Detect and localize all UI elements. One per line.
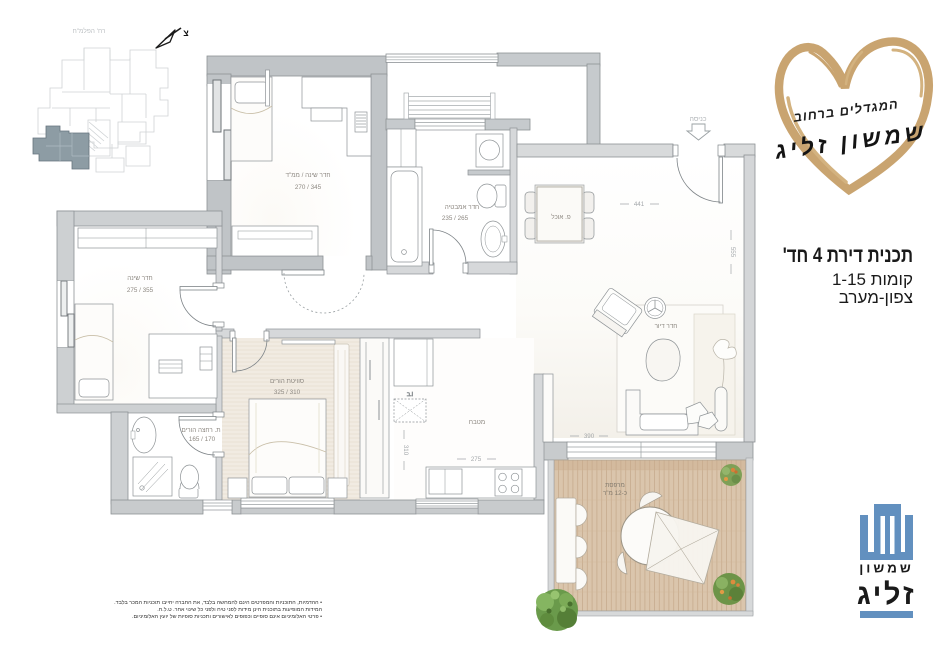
svg-text:441: 441 [634,201,645,208]
svg-text:חדר שינה: חדר שינה [127,275,152,282]
svg-text:270 / 345: 270 / 345 [295,184,322,191]
svg-text:קומות 1-15: קומות 1-15 [832,270,913,289]
svg-text:ב.I: ב.I [407,392,414,398]
svg-text:סוויטת הורים: סוויטת הורים [270,378,304,385]
svg-text:חדר דיור: חדר דיור [655,323,678,330]
svg-text:חדר אמבטיה: חדר אמבטיה [445,204,479,211]
svg-text:390: 390 [584,433,595,440]
svg-text:'תכנית דירת 4 חד: 'תכנית דירת 4 חד [783,244,913,267]
svg-text:רח' הפלמ"ח: רח' הפלמ"ח [72,27,105,35]
svg-text:שמשון: שמשון [859,561,914,576]
svg-text:זליג: זליג [857,579,916,611]
svg-text:275: 275 [471,456,482,463]
svg-text:צ: צ [183,28,189,38]
svg-text:כ-12 מ"ר: כ-12 מ"ר [603,490,627,497]
svg-text:ת. רחצה הורים: ת. רחצה הורים [181,427,220,434]
svg-text:פ. אוכל: פ. אוכל [551,213,571,221]
svg-text:310: 310 [402,445,409,456]
svg-text:235 / 265: 235 / 265 [442,215,469,222]
svg-text:275 / 355: 275 / 355 [127,287,154,294]
svg-text:325 / 310: 325 / 310 [274,389,301,396]
svg-text:חדר שינה / ממ"ד: חדר שינה / ממ"ד [285,172,330,179]
svg-text:צפון-מערב: צפון-מערב [839,288,913,307]
svg-text:מטבח: מטבח [469,419,485,426]
svg-text:מרפסת: מרפסת [605,482,625,489]
svg-text:.פרטי האלומיניום אינם סופיים ו: .פרטי האלומיניום אינם סופיים וכפופים לאי… [132,613,322,620]
svg-text:.המידות המופיעות בתוכנית הינן: .המידות המופיעות בתוכנית הינן מידות לפני… [157,606,322,613]
svg-text:.ההדמיות, התוכניות והמפרטים הי: .ההדמיות, התוכניות והמפרטים הינם להמחשה … [114,599,322,606]
svg-text:555: 555 [729,247,736,258]
svg-text:כניסה: כניסה [689,116,706,123]
svg-text:165 / 170: 165 / 170 [189,436,216,443]
